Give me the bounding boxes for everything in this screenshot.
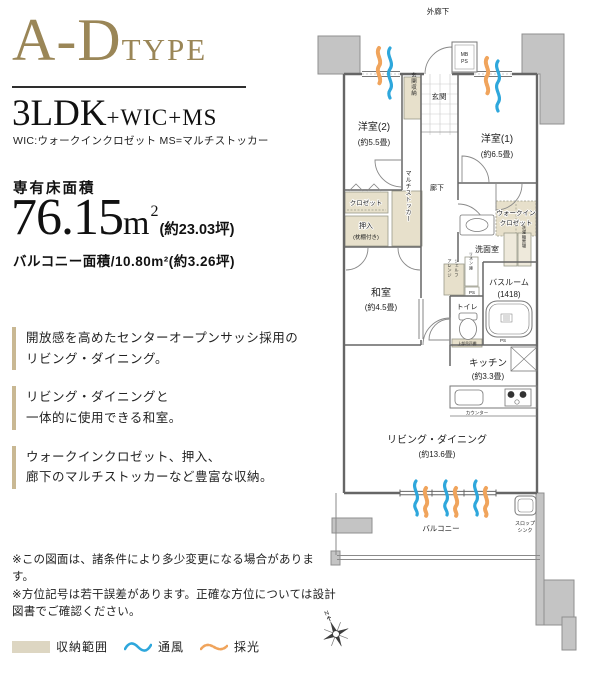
room1-door (462, 156, 489, 183)
entrance-storage-label: 玄関収納 (410, 71, 417, 97)
oshiire-label: 押入 (359, 221, 373, 230)
wall-mass-top-left (318, 36, 360, 74)
daylight-icon (486, 58, 488, 94)
linen-label: リネン庫 (469, 252, 474, 272)
oshiire-box (345, 216, 388, 246)
wic-label-1: ウォークイン (497, 209, 536, 217)
wic-label-2: クロゼット (500, 218, 533, 227)
compass-icon: N (313, 605, 354, 652)
washitsu-size: (約4.5畳) (365, 302, 398, 312)
compass-north-label: N (324, 610, 330, 617)
vanity (460, 215, 494, 235)
wind-icon (445, 481, 448, 515)
slop-sink-label-1: スロップ (515, 521, 535, 527)
outer-corridor-label: 外廊下 (427, 6, 450, 16)
duct-shaft-cross (511, 347, 537, 371)
daylight-icon (455, 488, 457, 516)
toilet-bowl (460, 319, 477, 340)
bathroom-size: (1418) (497, 290, 520, 299)
stove-burner (520, 391, 527, 398)
entrance-door (425, 47, 452, 74)
room2-size: (約5.5畳) (358, 137, 391, 147)
living-label: リビング・ダイニング (387, 433, 487, 446)
counter-label: カウンター (466, 410, 489, 417)
ps-label-corridor: PS (469, 290, 475, 295)
living-size: (約13.6畳) (419, 449, 456, 459)
daylight-icon (378, 48, 380, 84)
kitchen-size: (約3.3畳) (472, 371, 505, 381)
kitchen-label: キッチン (469, 358, 507, 369)
floor-plan: MB PS (0, 0, 600, 676)
stove-burner (508, 391, 515, 398)
ps-label-bath: PS (500, 338, 506, 343)
washroom-label: 洗面室 (475, 244, 499, 254)
entrance-tiles (421, 74, 458, 135)
room1-label: 洋室(1) (481, 132, 513, 145)
room1-size: (約6.5畳) (481, 149, 514, 159)
mb-label: MB (461, 52, 469, 58)
daylight-icon (425, 488, 427, 516)
washitsu-sliding-door (419, 299, 423, 339)
multi-stocker-label: マルチストッカー (404, 170, 411, 222)
wall-mass-top-right (522, 34, 564, 124)
corridor-living-door (423, 318, 450, 345)
toilet-label: トイレ (457, 304, 478, 311)
wall-mass-bottom-step2 (562, 617, 576, 650)
ps-label: PS (461, 59, 468, 65)
toilet-door (429, 319, 450, 340)
wind-icon (497, 61, 500, 111)
balcony-fence (337, 556, 540, 560)
arrange-shelf-label-2: シェルフ (455, 259, 460, 278)
daylight-icon (485, 488, 487, 516)
balcony-left-wall (332, 518, 372, 533)
kitchen-sink (455, 390, 483, 405)
closet-label: クロゼット (350, 198, 383, 207)
arrange-shelf-label-1: アレンジ (448, 258, 453, 277)
wind-icon (475, 481, 478, 515)
oshiire-size: (枕棚付き) (353, 233, 379, 241)
mb-ps-box: MB PS (452, 42, 477, 72)
slop-sink-label-2: シンク (517, 528, 532, 534)
entrance-label: 玄関 (432, 91, 447, 101)
laundry-box-left (504, 233, 517, 266)
wind-icon (415, 481, 418, 515)
corridor-label: 廊下 (430, 183, 444, 192)
oshiire-fusuma (346, 248, 420, 270)
washitsu-label: 和室 (371, 286, 391, 299)
laundry-label: 洗濯機置場 (521, 224, 527, 250)
room2-door (375, 160, 402, 187)
bathroom-label: バスルーム (489, 278, 529, 287)
stove (505, 389, 531, 406)
balcony-label: バルコニー (422, 524, 459, 533)
room2-label: 洋室(2) (358, 120, 390, 133)
bathtub (486, 301, 532, 337)
upper-cabinet-label: 上部吊戸棚 (458, 341, 477, 346)
